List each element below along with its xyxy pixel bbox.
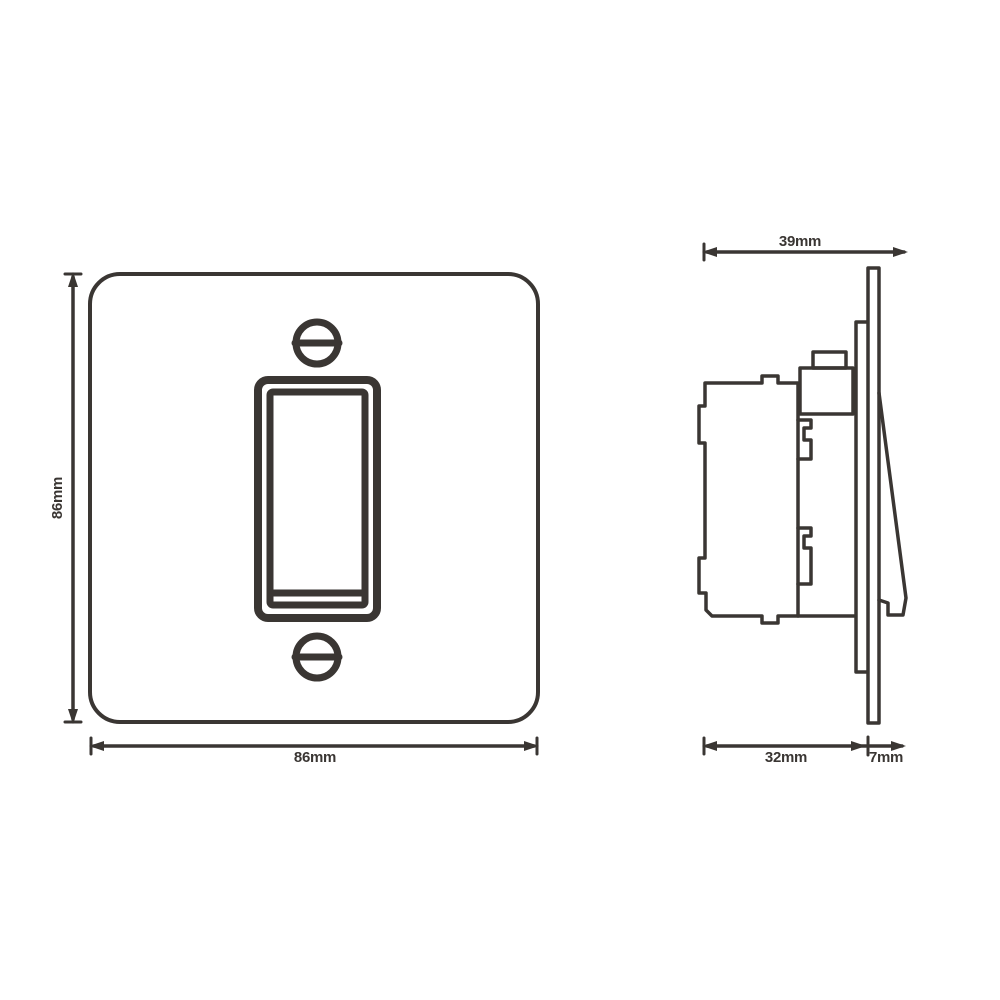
height-dimension: 86mm [49,272,81,724]
overall-depth-dimension: 39mm [702,233,908,260]
plate-projection-dimension: 7mm [869,741,906,766]
overall-depth-label: 39mm [779,233,821,250]
mechanism-body [699,376,798,623]
body-depth-dimension: 32mm [702,737,868,766]
mechanism-clip-upper [798,420,811,459]
body-depth-arrow-right [851,741,866,751]
screw-top [295,322,339,364]
screw-bottom [295,636,339,678]
height-dimension-label: 86mm [49,477,66,519]
side-view [699,268,906,723]
overall-depth-arrow-right [893,247,908,257]
rocker-side-profile [879,393,906,615]
switch-housing-cap [813,352,846,368]
switch-technical-drawing: 86mm 86mm [0,0,1000,1000]
front-view [90,274,538,722]
side-view-dimensions: 39mm 32mm 7mm [702,233,908,766]
mounting-frame [856,322,867,672]
rocker-surround [258,380,377,618]
rocker-button [270,392,365,605]
body-depth-label: 32mm [765,749,807,766]
rocker-front [258,380,377,618]
switch-housing [800,368,853,414]
faceplate-side [868,268,879,723]
width-dimension: 86mm [89,738,539,766]
width-dimension-label: 86mm [294,749,336,766]
plate-projection-label: 7mm [869,749,903,766]
mechanism-clip-lower [798,528,811,584]
